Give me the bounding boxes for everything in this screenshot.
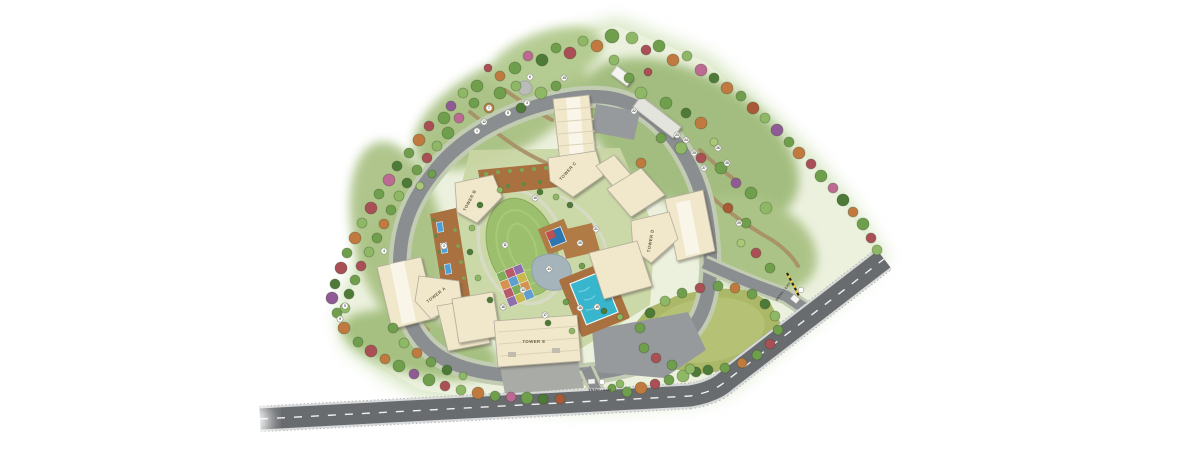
tree-icon — [456, 385, 466, 395]
tree-icon — [356, 261, 366, 271]
amenity-marker[interactable]: 20 — [577, 240, 583, 246]
amenity-marker[interactable]: 28 — [724, 160, 730, 166]
tree-icon — [349, 232, 361, 244]
tree-icon — [730, 283, 740, 293]
tree-icon — [635, 382, 647, 394]
amenity-marker-number: 18 — [578, 306, 582, 310]
tree-icon — [660, 97, 672, 109]
amenity-marker[interactable]: 9 — [337, 316, 343, 322]
amenity-marker-number: 27 — [702, 166, 706, 170]
tree-icon — [710, 138, 718, 146]
amenity-marker-number: 11 — [503, 243, 507, 247]
tree-icon — [555, 394, 565, 404]
tree-icon — [645, 308, 655, 318]
tree-icon — [428, 170, 436, 178]
tree-icon — [386, 205, 396, 215]
tree-icon — [677, 288, 687, 298]
amenity-marker-number: 19 — [595, 305, 599, 309]
tree-icon — [773, 325, 783, 335]
tree-icon — [745, 187, 757, 199]
tree-icon — [667, 54, 679, 66]
tree-icon — [760, 299, 770, 309]
amenity-marker-number: 16 — [501, 305, 505, 309]
tree-icon — [737, 239, 745, 247]
tree-icon — [639, 343, 649, 353]
amenity-marker-number: 13 — [521, 288, 525, 292]
tree-icon — [857, 218, 869, 230]
tree-icon — [469, 98, 479, 108]
tree-icon — [497, 187, 503, 193]
tree-icon — [760, 113, 770, 123]
amenity-marker[interactable]: 8 — [505, 110, 511, 116]
tree-icon — [765, 339, 775, 349]
tree-icon — [815, 170, 827, 182]
tree-icon — [383, 174, 395, 186]
tree-icon — [667, 360, 677, 370]
tree-icon — [644, 68, 652, 76]
amenity-marker-number: 15 — [562, 76, 566, 80]
tree-icon — [422, 153, 432, 163]
tree-icon — [521, 392, 533, 404]
tree-icon — [793, 147, 805, 159]
tree-icon — [372, 233, 382, 243]
tree-icon — [365, 202, 377, 214]
tree-icon — [424, 121, 434, 131]
tree-icon — [506, 392, 516, 402]
tree-icon — [350, 275, 360, 285]
tree-icon — [330, 279, 340, 289]
east-gate-marker — [798, 287, 804, 293]
amenity-marker[interactable]: 23 — [674, 132, 680, 138]
tree-icon — [695, 283, 705, 293]
tree-icon — [806, 159, 816, 169]
tree-icon — [624, 73, 634, 83]
tree-icon — [616, 380, 624, 388]
amenity-marker[interactable]: 25 — [691, 150, 697, 156]
tree-icon — [567, 202, 573, 208]
amenity-marker-number: 8 — [507, 111, 509, 115]
tree-icon — [551, 43, 561, 53]
tree-icon — [338, 322, 350, 334]
amenity-marker-number: 9 — [339, 317, 341, 321]
amenity-marker[interactable]: 12 — [481, 119, 487, 125]
tree-icon — [636, 158, 646, 168]
tree-icon — [458, 88, 468, 98]
tree-icon — [471, 80, 483, 92]
tree-icon — [442, 365, 452, 375]
tree-icon — [828, 183, 838, 193]
tree-icon — [626, 32, 638, 44]
tree-icon — [509, 62, 521, 74]
tree-icon — [651, 353, 661, 363]
tree-icon — [650, 379, 660, 389]
tree-icon — [641, 45, 651, 55]
amenity-marker[interactable]: 19 — [594, 304, 600, 310]
tree-icon — [335, 262, 347, 274]
tree-icon — [477, 202, 483, 208]
tree-icon — [731, 178, 741, 188]
tree-icon — [601, 308, 607, 314]
tree-icon — [605, 29, 619, 43]
tree-icon — [848, 207, 858, 217]
tree-icon — [392, 161, 402, 171]
south-gate-marker — [599, 379, 605, 385]
tree-icon — [609, 55, 619, 65]
amenity-marker-number: 20 — [578, 241, 582, 245]
tree-icon — [446, 101, 456, 111]
tree-icon — [736, 91, 746, 101]
amenity-marker[interactable]: 27 — [701, 165, 707, 171]
tree-icon — [438, 112, 450, 124]
tree-icon — [412, 165, 422, 175]
amenity-marker-number: 25 — [692, 151, 696, 155]
tree-icon — [409, 369, 419, 379]
amenity-marker[interactable]: 24 — [683, 137, 689, 143]
tree-icon — [747, 289, 757, 299]
tree-icon — [771, 124, 783, 136]
tree-icon — [682, 51, 692, 61]
amenity-marker-number: 24 — [684, 138, 688, 142]
amenity-marker[interactable]: 13 — [520, 287, 526, 293]
amenity-marker[interactable]: 17 — [542, 312, 548, 318]
amenity-marker-number: 1 — [476, 129, 478, 133]
tree-icon — [685, 364, 695, 374]
amenity-marker[interactable]: 6 — [527, 74, 533, 80]
amenity-marker-number: 7 — [488, 106, 490, 110]
tree-icon — [709, 73, 719, 83]
road-fade-left — [234, 403, 270, 439]
tree-icon — [353, 337, 363, 347]
tree-icon — [536, 54, 548, 66]
tree-icon — [653, 40, 665, 52]
tree-icon — [578, 36, 588, 46]
tree-icon — [413, 134, 425, 146]
tree-icon — [423, 374, 435, 386]
tree-icon — [723, 203, 733, 213]
tree-icon — [484, 64, 492, 72]
tree-icon — [495, 71, 505, 81]
tree-icon — [741, 218, 751, 228]
tree-icon — [469, 225, 475, 231]
amenity-marker[interactable]: 15 — [561, 75, 567, 81]
tree-icon — [681, 108, 691, 118]
amenity-marker-number: 22 — [632, 109, 636, 113]
tree-icon — [635, 87, 647, 99]
tree-icon — [467, 249, 473, 255]
tower-e-label: TOWER E — [522, 339, 545, 344]
tree-icon — [454, 113, 464, 123]
south-gate-label: ENTRY / EXIT — [589, 388, 612, 392]
tree-icon — [751, 248, 761, 258]
tree-icon — [388, 323, 398, 333]
tree-icon — [737, 358, 747, 368]
tree-icon — [523, 51, 533, 61]
tree-icon — [695, 64, 707, 76]
tree-icon — [402, 178, 412, 188]
amenity-marker[interactable]: 26 — [715, 145, 721, 151]
amenity-marker-number: 28 — [725, 161, 729, 165]
amenity-marker[interactable]: 7 — [486, 105, 492, 111]
tree-icon — [494, 87, 506, 99]
tree-icon — [365, 345, 377, 357]
amenity-marker-number: 21 — [594, 227, 598, 231]
tree-icon — [416, 182, 424, 190]
amenity-marker[interactable]: 4 — [381, 248, 387, 254]
amenity-marker-number: 12 — [482, 120, 486, 124]
tree-icon — [721, 82, 733, 94]
amenity-marker[interactable]: 14 — [546, 266, 552, 272]
tree-icon — [713, 281, 723, 291]
tree-icon — [569, 328, 575, 334]
tree-icon — [426, 357, 436, 367]
amenity-marker-number: 10 — [533, 196, 537, 200]
amenity-marker-number: 17 — [543, 313, 547, 317]
amenity-marker[interactable]: 18 — [577, 305, 583, 311]
tree-icon — [342, 248, 352, 258]
amenity-marker-number: 14 — [547, 267, 551, 271]
tree-icon — [459, 372, 467, 380]
amenity-marker[interactable]: 16 — [500, 304, 506, 310]
amenity-marker-number: 6 — [529, 75, 531, 79]
tree-icon — [695, 117, 707, 129]
tree-icon — [696, 153, 706, 163]
amenity-marker-number: 3 — [526, 101, 528, 105]
tree-icon — [752, 350, 762, 360]
tree-icon — [399, 338, 409, 348]
tree-icon — [579, 263, 585, 269]
tree-icon — [393, 360, 405, 372]
tree-icon — [442, 127, 454, 139]
site-plan-canvas: TOWER B TOWER C TOWER D TOWER A — [0, 0, 1200, 450]
amenity-marker[interactable]: 11 — [502, 242, 508, 248]
amenity-marker[interactable]: 3 — [524, 100, 530, 106]
amenity-marker[interactable]: 22 — [631, 108, 637, 114]
tree-icon — [837, 194, 849, 206]
tree-icon — [511, 81, 521, 91]
tree-icon — [656, 133, 666, 143]
tree-icon — [412, 348, 422, 358]
tree-icon — [872, 245, 882, 255]
tree-icon — [379, 219, 389, 229]
tree-icon — [472, 387, 484, 399]
amenity-marker[interactable]: 5 — [342, 303, 348, 309]
tree-icon — [394, 191, 404, 201]
tree-icon — [475, 275, 481, 281]
tree-icon — [364, 247, 374, 257]
tree-icon — [537, 189, 543, 195]
amenity-marker-number: 2 — [443, 244, 445, 248]
tree-icon — [675, 142, 687, 154]
amenity-marker[interactable]: 2 — [441, 243, 447, 249]
tree-icon — [622, 387, 632, 397]
tree-icon — [487, 297, 493, 303]
amenity-marker-number: 26 — [716, 146, 720, 150]
south-gate-hut — [588, 379, 595, 384]
tree-icon — [664, 375, 674, 385]
tree-icon — [326, 292, 338, 304]
tree-icon — [720, 363, 730, 373]
tree-icon — [760, 202, 772, 214]
tree-icon — [591, 40, 603, 52]
tree-icon — [490, 391, 500, 401]
tree-icon — [563, 299, 569, 305]
tree-icon — [535, 87, 547, 99]
tree-icon — [404, 148, 414, 158]
tree-icon — [432, 141, 442, 151]
tree-icon — [784, 137, 794, 147]
site-plan-page: TOWER B TOWER C TOWER D TOWER A — [0, 0, 1200, 450]
tree-icon — [357, 218, 367, 228]
tree-icon — [374, 189, 384, 199]
amenity-marker[interactable]: 1 — [474, 128, 480, 134]
tree-icon — [564, 47, 576, 59]
amenity-marker[interactable]: 21 — [593, 226, 599, 232]
tree-icon — [747, 102, 759, 114]
amenity-marker[interactable]: 10 — [532, 195, 538, 201]
amenity-marker-number: 5 — [344, 304, 346, 308]
tree-icon — [551, 81, 561, 91]
tree-icon — [765, 263, 775, 273]
amenity-marker-number: 29 — [737, 221, 741, 225]
tree-icon — [440, 381, 450, 391]
tree-icon — [635, 323, 645, 333]
tree-icon — [380, 354, 390, 364]
tree-icon — [660, 296, 670, 306]
amenity-marker[interactable]: 29 — [736, 220, 742, 226]
tree-icon — [617, 314, 623, 320]
tree-icon — [553, 194, 559, 200]
tree-icon — [703, 365, 713, 375]
amenity-marker-number: 23 — [675, 133, 679, 137]
amenity-marker-number: 4 — [383, 249, 385, 253]
tree-icon — [866, 233, 876, 243]
tree-icon — [770, 311, 780, 321]
tree-icon — [538, 394, 548, 404]
tree-icon — [545, 320, 551, 326]
tree-icon — [344, 289, 354, 299]
